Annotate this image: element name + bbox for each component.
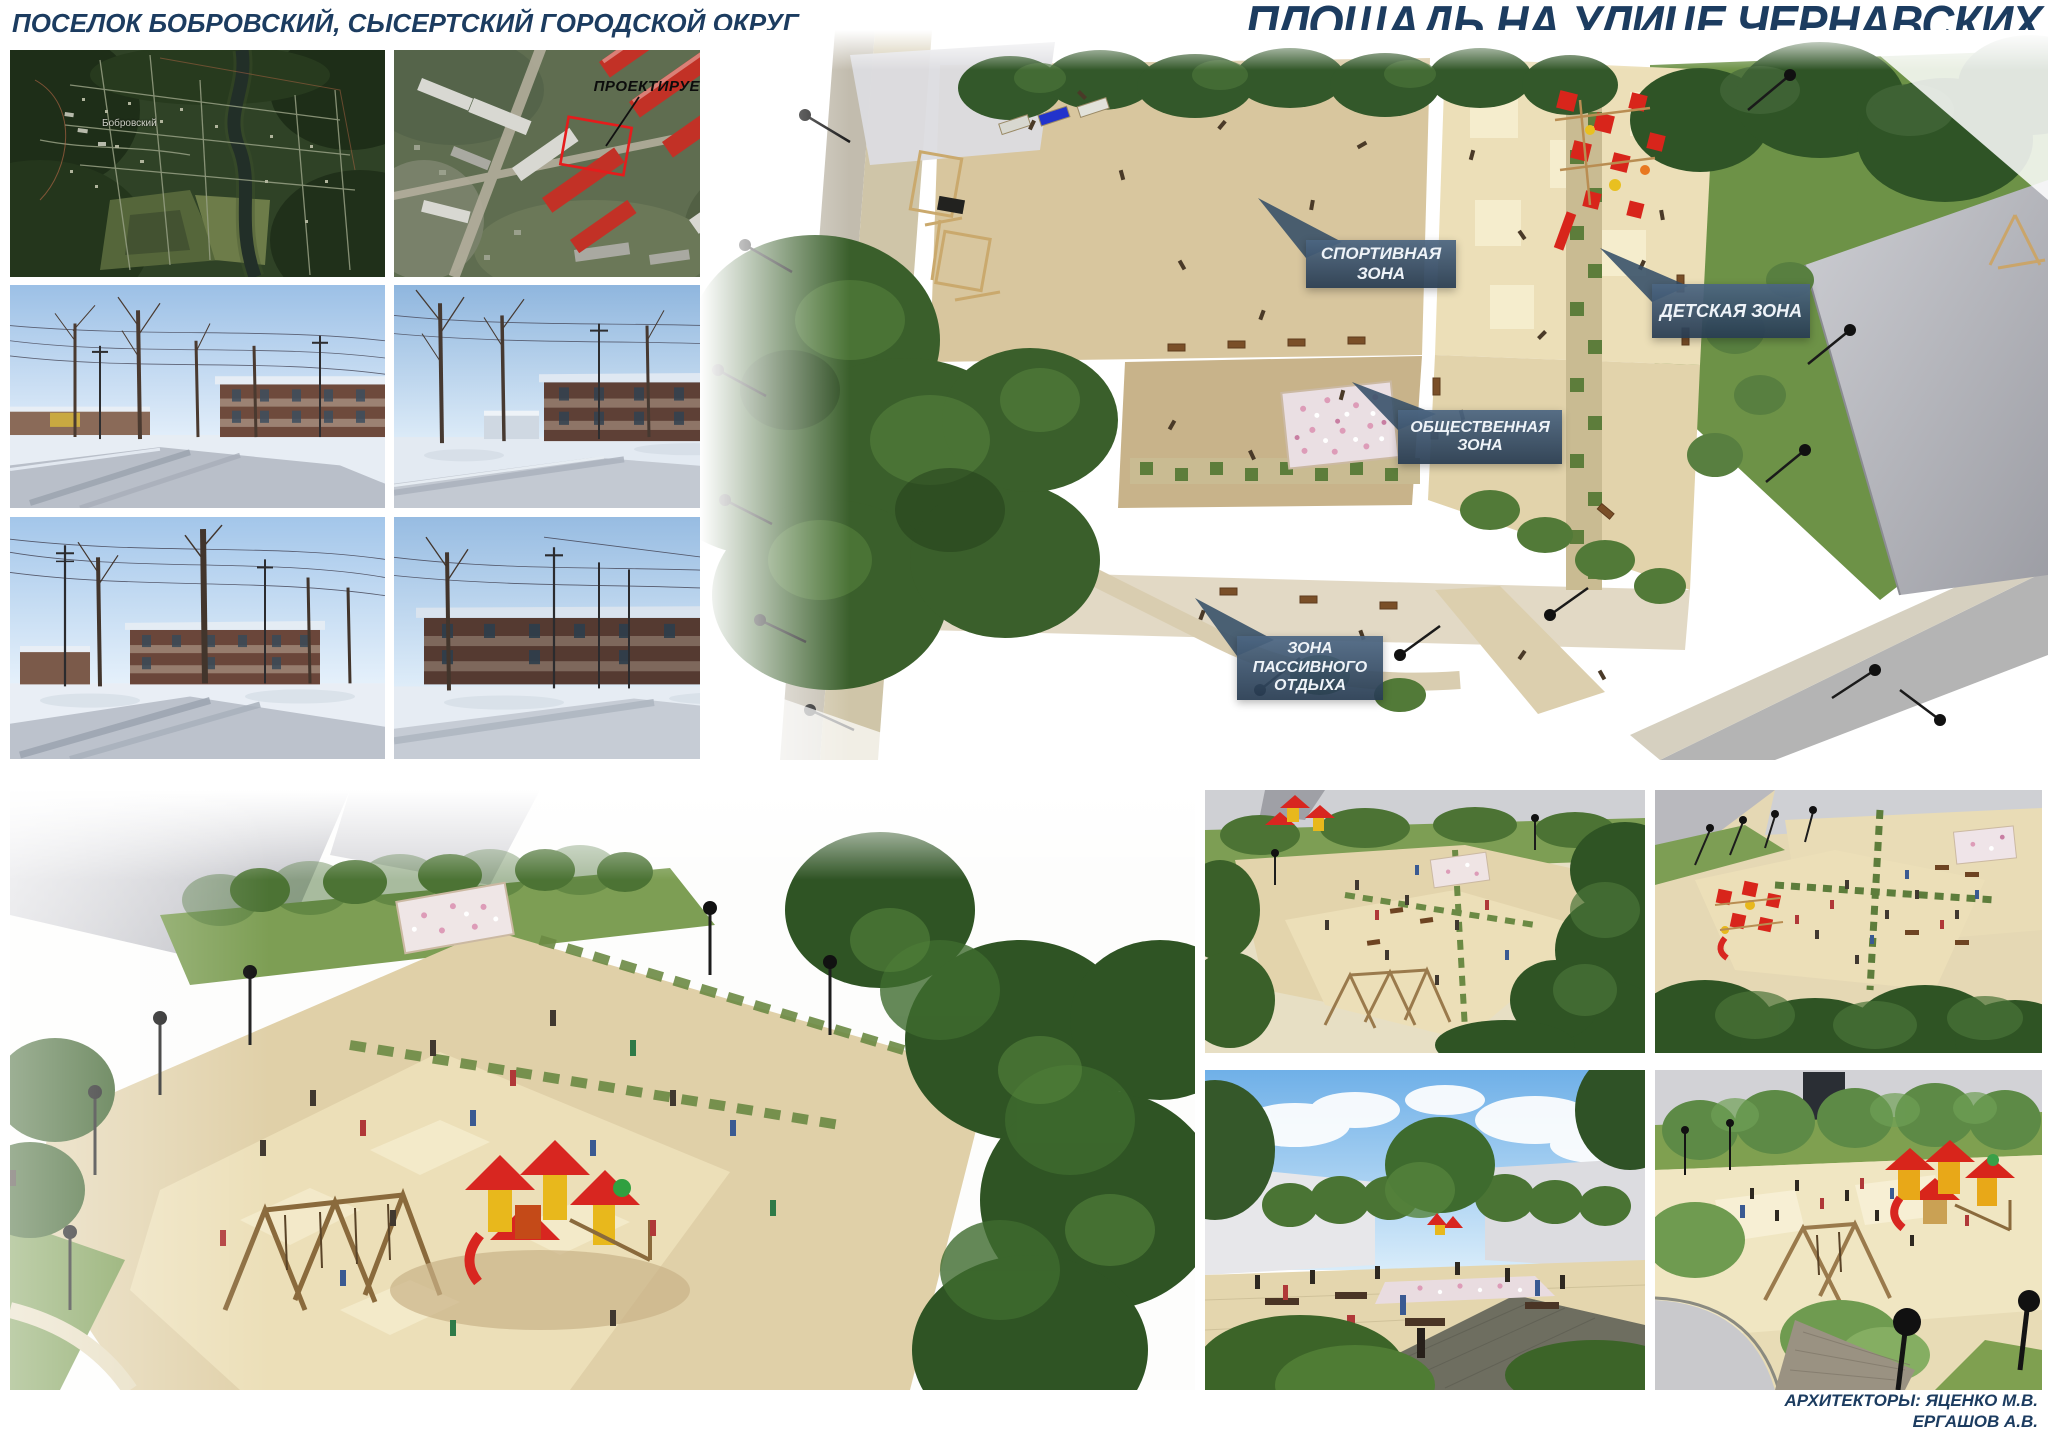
site-photo-1 bbox=[10, 285, 385, 508]
render-aerial-3-image bbox=[1655, 790, 2042, 1053]
credits-line2: ЕРГАШОВ А.В. bbox=[1785, 1411, 2038, 1432]
site-photo-3-image bbox=[10, 517, 385, 759]
zone-label-passive: ЗОНА ПАССИВНОГО ОТДЫХА bbox=[1237, 636, 1383, 700]
credits: АРХИТЕКТОРЫ: ЯЦЕНКО М.В. ЕРГАШОВ А.В. bbox=[1785, 1390, 2038, 1433]
zone-label-children-text: ДЕТСКАЯ ЗОНА bbox=[1660, 301, 1802, 322]
satellite-overview-image bbox=[10, 50, 385, 277]
zone-label-children: ДЕТСКАЯ ЗОНА bbox=[1652, 284, 1810, 338]
satellite-overview-map: Бобровский bbox=[10, 50, 385, 277]
site-photo-1-image bbox=[10, 285, 385, 508]
site-photo-3 bbox=[10, 517, 385, 759]
zone-label-sport: СПОРТИВНАЯ ЗОНА bbox=[1306, 240, 1456, 288]
render-aerial-2-image bbox=[1205, 790, 1645, 1053]
render-eyelevel-image bbox=[1205, 1070, 1645, 1390]
render-aerial-main bbox=[10, 790, 1195, 1390]
location-title: ПОСЕЛОК БОБРОВСКИЙ, СЫСЕРТСКИЙ ГОРОДСКОЙ… bbox=[12, 8, 799, 39]
zone-label-public-text: ОБЩЕСТВЕННАЯ ЗОНА bbox=[1398, 419, 1562, 456]
render-aerial-2 bbox=[1205, 790, 1645, 1053]
presentation-board: ПОСЕЛОК БОБРОВСКИЙ, СЫСЕРТСКИЙ ГОРОДСКОЙ… bbox=[0, 0, 2048, 1434]
render-aerial-main-image bbox=[10, 790, 1195, 1390]
render-playground bbox=[1655, 1070, 2042, 1390]
render-playground-image bbox=[1655, 1070, 2042, 1390]
zone-label-passive-text: ЗОНА ПАССИВНОГО ОТДЫХА bbox=[1243, 640, 1377, 695]
credits-line1: АРХИТЕКТОРЫ: ЯЦЕНКО М.В. bbox=[1785, 1390, 2038, 1411]
render-eyelevel bbox=[1205, 1070, 1645, 1390]
zone-label-public: ОБЩЕСТВЕННАЯ ЗОНА bbox=[1398, 410, 1562, 464]
render-aerial-3 bbox=[1655, 790, 2042, 1053]
zone-label-sport-text: СПОРТИВНАЯ ЗОНА bbox=[1306, 244, 1456, 283]
settlement-label: Бобровский bbox=[102, 118, 157, 129]
